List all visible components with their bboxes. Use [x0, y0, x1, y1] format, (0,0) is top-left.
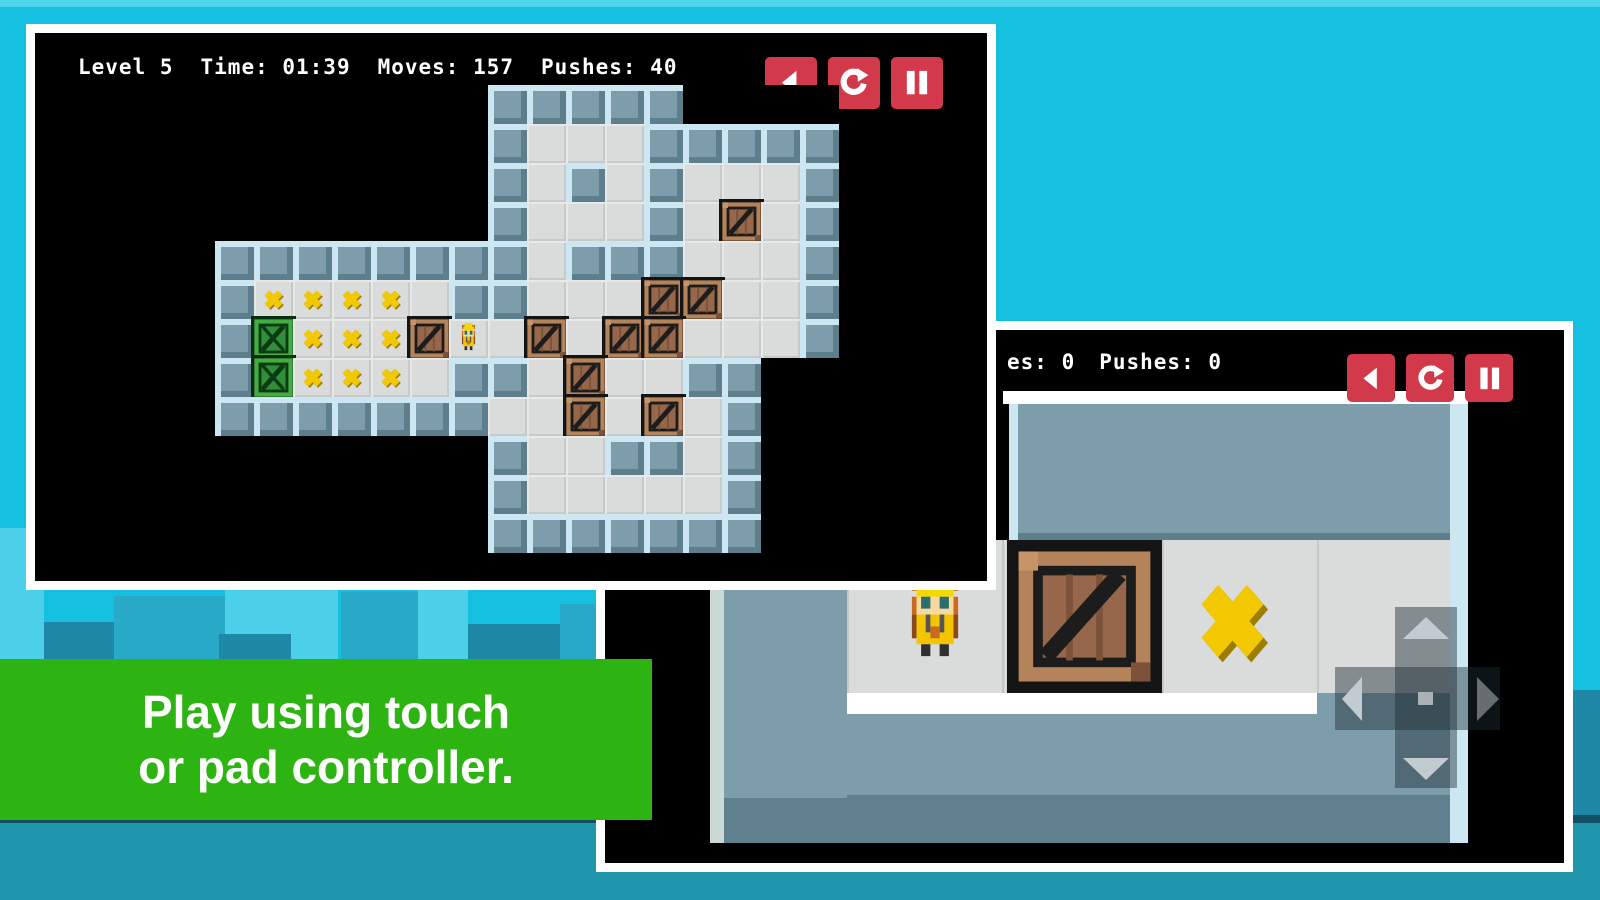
tile-outside	[449, 163, 488, 202]
tile-wall	[605, 241, 644, 280]
crate-on-target-sprite	[251, 355, 296, 400]
tile-floor	[566, 319, 605, 358]
tile-floor	[527, 475, 566, 514]
tile-outside	[215, 85, 254, 124]
tile-outside	[449, 514, 488, 553]
tile-floor	[761, 319, 800, 358]
tile-wall	[605, 514, 644, 553]
tile-outside	[254, 475, 293, 514]
hud-pushes: Pushes: 40	[541, 55, 677, 79]
tile-wall	[254, 241, 293, 280]
tile-outside	[215, 475, 254, 514]
tile-crate	[605, 319, 644, 358]
tile-outside	[410, 514, 449, 553]
tile-floor	[488, 319, 527, 358]
tile-outside	[722, 85, 761, 124]
tile-outside	[293, 436, 332, 475]
tile-wall	[215, 358, 254, 397]
tile-floor	[761, 241, 800, 280]
pause-button[interactable]	[891, 57, 943, 109]
tile-floor	[527, 280, 566, 319]
tile-wall	[722, 436, 761, 475]
tile-floor	[410, 280, 449, 319]
tile-wall	[722, 124, 761, 163]
target-marker-sprite	[340, 327, 363, 350]
tile-crate	[566, 397, 605, 436]
dpad-center-dot	[1418, 692, 1433, 705]
tile-wall	[644, 514, 683, 553]
tile-outside	[215, 163, 254, 202]
tile-crate-on-target	[254, 358, 293, 397]
tile-target	[371, 319, 410, 358]
tile-outside	[254, 202, 293, 241]
tile-wall	[761, 124, 800, 163]
target-marker-sprite	[379, 327, 402, 350]
tile-floor	[605, 397, 644, 436]
tile-wall	[644, 202, 683, 241]
tile-target	[371, 358, 410, 397]
tile-outside	[410, 436, 449, 475]
tile-floor	[488, 397, 527, 436]
tile-outside	[449, 85, 488, 124]
tile-outside	[293, 475, 332, 514]
tile-outside	[293, 202, 332, 241]
tile-floor	[605, 280, 644, 319]
tile-outside	[800, 436, 839, 475]
tile-outside	[332, 163, 371, 202]
target-marker-sprite	[340, 366, 363, 389]
crate-sprite	[719, 199, 764, 244]
tile-wall	[215, 319, 254, 358]
tile-floor	[605, 163, 644, 202]
hud: Level 5 Time: 01:39 Moves: 157 Pushes: 4…	[78, 55, 677, 79]
tile-wall	[566, 514, 605, 553]
tile-outside	[761, 514, 800, 553]
tile-floor	[722, 163, 761, 202]
ic-pause-icon	[901, 67, 932, 98]
target-marker-sprite	[340, 288, 363, 311]
pause-button[interactable]	[1465, 354, 1513, 402]
tile-outside	[254, 85, 293, 124]
tile-wall	[800, 319, 839, 358]
tile-outside	[332, 85, 371, 124]
tile-target	[332, 319, 371, 358]
tile-outside	[800, 514, 839, 553]
tile-outside	[215, 514, 254, 553]
tile-outside	[683, 85, 722, 124]
tile-floor	[644, 358, 683, 397]
tile-wall	[215, 241, 254, 280]
tile-outside	[800, 475, 839, 514]
dpad-right-arrow[interactable]	[1477, 677, 1499, 721]
tile-outside	[332, 475, 371, 514]
tile-wall	[488, 85, 527, 124]
tile-outside	[761, 358, 800, 397]
tile-floor	[683, 241, 722, 280]
tile-outside	[332, 202, 371, 241]
tile-outside	[293, 514, 332, 553]
hud-moves: Moves: 157	[378, 55, 514, 79]
hud-moves-partial: es: 0	[1007, 350, 1075, 374]
tile-outside	[761, 436, 800, 475]
tile-wall	[488, 163, 527, 202]
tile-outside	[449, 475, 488, 514]
player-sprite	[458, 323, 479, 354]
tile-wall	[449, 241, 488, 280]
tile-wall	[800, 163, 839, 202]
tile-target	[254, 280, 293, 319]
tile-wall	[683, 124, 722, 163]
tile-crate	[644, 397, 683, 436]
tile-floor	[527, 124, 566, 163]
tile-wall	[410, 241, 449, 280]
crate-sprite	[563, 394, 608, 439]
tile-outside	[371, 85, 410, 124]
tile-wall	[800, 124, 839, 163]
promo-image: es: 0 Pushes: 0	[0, 0, 1600, 900]
tile-wall	[371, 397, 410, 436]
tile-outside	[410, 475, 449, 514]
tile-outside	[371, 436, 410, 475]
wall-bottom-outline	[847, 693, 1317, 714]
ic-back-icon	[1357, 364, 1386, 393]
tile-floor	[566, 436, 605, 475]
dpad-up-arrow[interactable]	[1403, 617, 1449, 639]
target-marker-sprite	[301, 327, 324, 350]
tile-floor	[605, 475, 644, 514]
tile-outside	[293, 124, 332, 163]
tile-floor	[683, 436, 722, 475]
tile-wall	[488, 475, 527, 514]
tile-outside	[371, 163, 410, 202]
tile-target	[293, 280, 332, 319]
tile-outside	[449, 436, 488, 475]
tile-wall	[527, 514, 566, 553]
tile-wall	[644, 163, 683, 202]
tile-floor	[527, 436, 566, 475]
tile-floor	[605, 358, 644, 397]
tile-wall	[488, 358, 527, 397]
tile-floor	[566, 124, 605, 163]
tile-outside	[449, 202, 488, 241]
crate-sprite	[1007, 540, 1162, 693]
tile-wall	[722, 358, 761, 397]
tile-crate	[722, 202, 761, 241]
tile-target	[332, 280, 371, 319]
tile-wall	[644, 124, 683, 163]
tile-floor	[683, 475, 722, 514]
tile-floor	[566, 202, 605, 241]
background-top-strip	[0, 0, 1600, 7]
tile-floor	[605, 124, 644, 163]
tile-outside	[332, 514, 371, 553]
tile-outside	[761, 475, 800, 514]
tile-wall	[332, 241, 371, 280]
tile-wall	[722, 397, 761, 436]
tile-wall	[644, 241, 683, 280]
tile-outside	[800, 85, 839, 124]
crate-sprite	[407, 316, 452, 361]
target-marker-sprite	[379, 288, 402, 311]
tile-outside	[254, 514, 293, 553]
tile-target	[371, 280, 410, 319]
hud-fragment: es: 0 Pushes: 0	[1007, 350, 1222, 374]
tile-outside	[371, 202, 410, 241]
tile-wall	[449, 358, 488, 397]
tile-wall	[254, 397, 293, 436]
bottom-wall	[847, 714, 1450, 843]
tile-wall	[488, 436, 527, 475]
target-x-sprite	[1193, 575, 1272, 667]
tile-outside	[254, 124, 293, 163]
back-button[interactable]	[1347, 354, 1395, 402]
tile-wall	[605, 436, 644, 475]
target-marker-sprite	[301, 288, 324, 311]
tile-outside	[410, 202, 449, 241]
tile-wall	[644, 85, 683, 124]
tile-crate	[527, 319, 566, 358]
dpad-left-arrow[interactable]	[1342, 677, 1362, 721]
target-marker-sprite	[301, 366, 324, 389]
banner-line1: Play using touch	[142, 685, 510, 740]
tile-wall	[683, 514, 722, 553]
tile-wall	[371, 241, 410, 280]
ic-restart-icon	[838, 67, 869, 98]
tile-outside	[449, 124, 488, 163]
tile-wall	[488, 514, 527, 553]
tile-floor	[527, 163, 566, 202]
tile-floor	[761, 202, 800, 241]
tile-wall	[449, 280, 488, 319]
tile-outside	[371, 514, 410, 553]
tile-wall	[410, 397, 449, 436]
tile-target	[293, 319, 332, 358]
tile-wall	[215, 280, 254, 319]
ic-restart-icon	[1416, 364, 1445, 393]
tile-outside	[410, 124, 449, 163]
tile-floor	[410, 358, 449, 397]
tile-crate	[644, 280, 683, 319]
dpad-down-arrow[interactable]	[1403, 758, 1449, 780]
tile-outside	[761, 397, 800, 436]
crate-sprite	[641, 316, 686, 361]
tile-target	[293, 358, 332, 397]
tile-floor	[566, 280, 605, 319]
tile-crate	[683, 280, 722, 319]
tile-wall	[722, 475, 761, 514]
tile-outside	[371, 475, 410, 514]
screenshot-level5: Level 5 Time: 01:39 Moves: 157 Pushes: 4…	[26, 24, 996, 590]
tile-outside	[254, 163, 293, 202]
tile-floor	[761, 280, 800, 319]
tile-wall	[488, 124, 527, 163]
tile-wall	[527, 85, 566, 124]
tile-wall	[800, 241, 839, 280]
tile-crate-on-target	[254, 319, 293, 358]
caption-banner: Play using touch or pad controller.	[0, 659, 652, 820]
tile-wall	[488, 202, 527, 241]
tile-outside	[800, 397, 839, 436]
tile-wall	[293, 397, 332, 436]
tile-floor	[527, 397, 566, 436]
tile-floor	[722, 280, 761, 319]
tile-crate	[644, 319, 683, 358]
tile-wall	[293, 241, 332, 280]
tile-wall	[488, 280, 527, 319]
hud-time: Time: 01:39	[201, 55, 351, 79]
target-marker-sprite	[379, 366, 402, 389]
tile-wall	[800, 280, 839, 319]
tile-outside	[332, 124, 371, 163]
tile-floor	[527, 202, 566, 241]
tile-wall	[566, 163, 605, 202]
tile-wall	[644, 436, 683, 475]
ic-pause-icon	[1475, 364, 1504, 393]
tile-floor	[605, 202, 644, 241]
tile-wall	[722, 514, 761, 553]
tile-floor	[683, 397, 722, 436]
tile-wall	[449, 397, 488, 436]
tile-wall	[488, 241, 527, 280]
tile-wall	[605, 85, 644, 124]
tile-wall	[566, 85, 605, 124]
tile-wall	[215, 397, 254, 436]
tile-wall	[332, 397, 371, 436]
tile-crate	[566, 358, 605, 397]
skyline-building	[1573, 690, 1600, 815]
tile-outside	[215, 436, 254, 475]
tile-outside	[254, 436, 293, 475]
top-wall	[1009, 404, 1468, 540]
tile-floor	[683, 163, 722, 202]
target-marker-sprite	[262, 288, 285, 311]
tile-outside	[215, 124, 254, 163]
hud-pushes: Pushes: 0	[1099, 350, 1222, 374]
game-controls	[1347, 354, 1513, 402]
tile-outside	[371, 124, 410, 163]
restart-button[interactable]	[1406, 354, 1454, 402]
tile-floor	[527, 358, 566, 397]
tile-floor	[644, 475, 683, 514]
tile-floor	[566, 475, 605, 514]
tile-floor	[761, 163, 800, 202]
tile-player	[449, 319, 488, 358]
tile-outside	[410, 85, 449, 124]
tile-crate	[410, 319, 449, 358]
tile-outside	[410, 163, 449, 202]
tile-floor	[527, 241, 566, 280]
tile-wall	[683, 358, 722, 397]
banner-line2: or pad controller.	[138, 740, 514, 795]
tile-outside	[293, 85, 332, 124]
sokoban-level-grid	[215, 85, 839, 553]
tile-target	[332, 358, 371, 397]
tile-floor	[722, 241, 761, 280]
hud-level: Level 5	[78, 55, 174, 79]
tile-outside	[293, 163, 332, 202]
tile-wall	[800, 202, 839, 241]
crate-sprite	[641, 394, 686, 439]
tile-floor	[683, 319, 722, 358]
tile-floor	[683, 202, 722, 241]
tile-floor	[722, 319, 761, 358]
tile-wall	[566, 241, 605, 280]
tile-outside	[332, 436, 371, 475]
crate-sprite	[680, 277, 725, 322]
tile-outside	[215, 202, 254, 241]
tile-outside	[761, 85, 800, 124]
tile-outside	[800, 358, 839, 397]
